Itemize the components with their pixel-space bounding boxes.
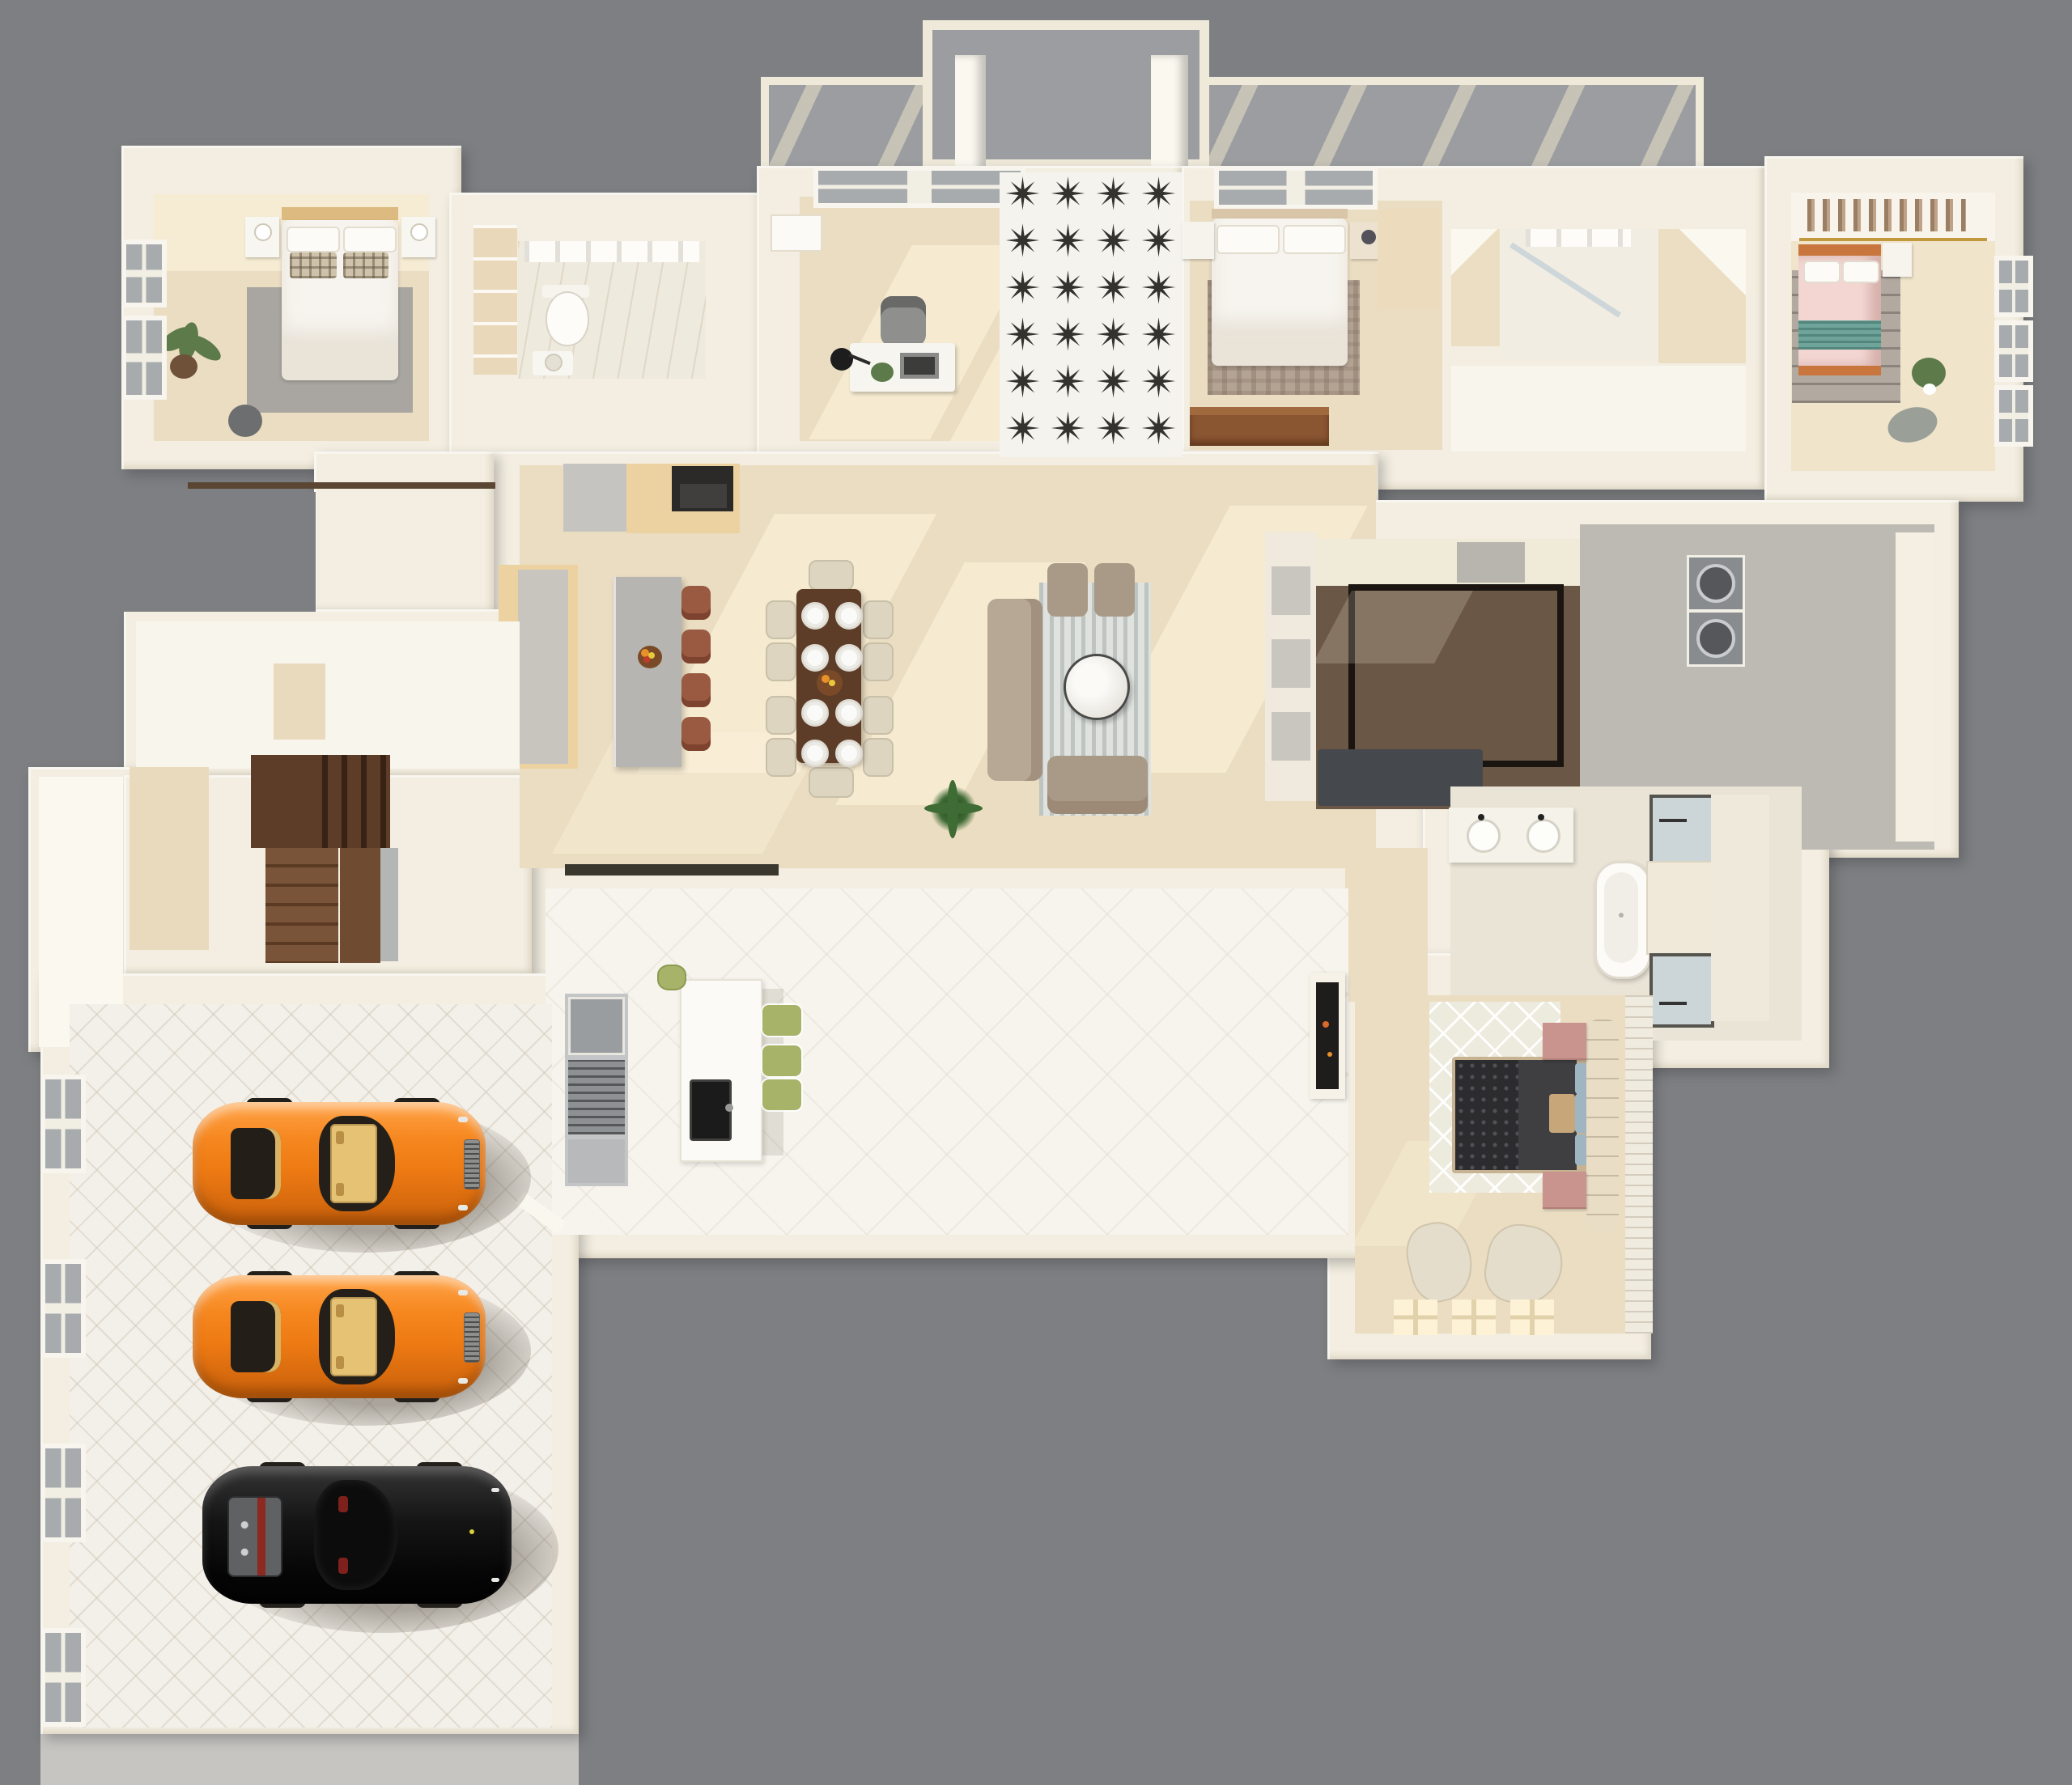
range-hood	[680, 484, 727, 508]
window-light	[1510, 1300, 1554, 1335]
covered-patio	[546, 888, 1348, 1235]
master-bed-throw	[1455, 1060, 1518, 1170]
bed2-headboard	[1212, 209, 1348, 218]
place-setting	[801, 602, 829, 630]
hall-bathroom	[518, 241, 706, 379]
car-seat	[336, 1183, 344, 1196]
car-rear-window	[231, 1301, 281, 1372]
bedroom1-window	[121, 240, 167, 307]
den-cabinet-gray	[1457, 542, 1525, 583]
car-headlight	[458, 1378, 468, 1384]
walk-in-closet-left	[1451, 229, 1500, 346]
bed3-teal-blanket	[1798, 320, 1881, 350]
hall-floor	[136, 621, 520, 769]
bedroom2-dresser	[1190, 407, 1329, 446]
loveseat	[1047, 756, 1148, 814]
stair-steps	[265, 848, 338, 963]
car-headlight	[458, 1205, 468, 1210]
wing-hall-nub	[314, 452, 494, 615]
shower-glass	[1509, 243, 1621, 318]
bar-stool	[681, 630, 711, 664]
bed2-pillow	[1283, 225, 1346, 254]
ottoman	[1047, 563, 1088, 617]
bed2-pillow	[1216, 225, 1280, 254]
bed3-headboard	[1798, 244, 1881, 256]
place-setting	[801, 740, 829, 767]
shower-room	[1501, 229, 1657, 360]
dining-chair	[766, 600, 796, 639]
car-accent	[469, 1529, 474, 1534]
car-seat	[338, 1558, 348, 1574]
dining-chair	[863, 642, 894, 681]
coffee-table	[1064, 654, 1130, 720]
wavy-wallpaper	[1625, 995, 1653, 1333]
place-setting	[835, 699, 863, 727]
stair-glass-chips	[380, 848, 398, 961]
master-pillow-tan	[1549, 1094, 1575, 1133]
patio-faucet	[725, 1104, 733, 1112]
kitchen-island	[614, 577, 681, 767]
floor-pouf	[228, 405, 262, 437]
ember	[1323, 1021, 1329, 1028]
dining-chair	[863, 738, 894, 777]
shower-glass-door	[1650, 795, 1714, 866]
car-grille	[464, 1312, 480, 1363]
bed1-pillow	[287, 227, 340, 252]
dining-chair	[863, 696, 894, 735]
dining-chair	[863, 600, 894, 639]
place-setting	[801, 699, 829, 727]
den-cabinet-band	[1316, 539, 1580, 586]
foyer: ✴ ✴ ✴ ✴ ✴ ✴ ✴ ✴ ✴ ✴ ✴ ✴ ✴ ✴ ✴ ✴ ✴ ✴ ✴ ✴ …	[1000, 172, 1182, 457]
bedroom3-window	[1994, 320, 2033, 382]
office-chair	[881, 296, 926, 346]
washer-door	[1696, 564, 1735, 603]
place-setting	[835, 644, 863, 672]
bed1-headboard	[282, 207, 398, 220]
walk-in-closet-right	[1658, 229, 1746, 363]
green-kettle	[657, 965, 686, 990]
shower-skylight	[1526, 229, 1631, 247]
garage-window	[40, 1444, 86, 1542]
palm-frond	[947, 780, 958, 838]
car-headlight	[491, 1578, 499, 1582]
driveway-apron	[40, 1734, 579, 1785]
stair-slat-screen	[322, 755, 390, 848]
office-ac-unit	[771, 214, 822, 252]
yard-notch	[42, 492, 316, 612]
kitchen-cabinet-gray	[563, 464, 626, 532]
dining-chair-head	[809, 767, 854, 798]
master-corridor	[1345, 848, 1428, 1002]
garage-window	[40, 1259, 86, 1358]
bedroom1-threshold	[188, 482, 495, 489]
car-body	[193, 1102, 486, 1225]
bedroom3-window	[1994, 256, 2033, 317]
dining-chair	[766, 738, 796, 777]
window-light	[1394, 1300, 1437, 1335]
master-nightstand	[1543, 1172, 1586, 1209]
plant-pot	[170, 354, 197, 379]
master-headboard	[1586, 1020, 1619, 1232]
bathroom-skylight	[524, 241, 699, 262]
bar-stool	[681, 673, 711, 707]
car-seat	[336, 1131, 344, 1144]
bar-stool	[681, 586, 711, 620]
hall-closet	[274, 664, 325, 740]
bed1-plaid-pillow	[290, 252, 337, 278]
desk-plant	[871, 363, 894, 382]
car-headlight	[458, 1290, 468, 1295]
dryer-door	[1696, 619, 1735, 658]
sofa	[987, 599, 1042, 781]
laptop	[900, 353, 939, 379]
stair-rail	[340, 848, 380, 963]
table-lamp	[410, 223, 428, 241]
sports-car-orange-2	[193, 1275, 486, 1398]
bed3-pillow	[1842, 261, 1879, 283]
bed3-footboard	[1798, 366, 1881, 375]
nightstand	[1182, 222, 1214, 259]
fruit	[829, 680, 835, 686]
vase	[1361, 230, 1376, 244]
garage-window	[40, 1075, 86, 1173]
vanity-sink	[1467, 819, 1501, 853]
car-grille	[464, 1139, 480, 1190]
bed1-pillow	[343, 227, 397, 252]
vanity-sink	[1526, 819, 1560, 853]
car-seat	[338, 1496, 348, 1512]
kitchen-countertop	[518, 570, 568, 764]
plant-pot	[1923, 384, 1936, 395]
tub-drain	[1619, 913, 1624, 918]
car-seat	[336, 1356, 344, 1369]
bedroom2-window	[1214, 166, 1378, 210]
bed3-pillow	[1803, 261, 1841, 283]
bedroom1-window	[121, 316, 167, 400]
fruit	[643, 656, 650, 663]
window-light	[1452, 1300, 1496, 1335]
patio-stool	[762, 1005, 801, 1036]
faucet	[1478, 814, 1484, 820]
closet-rail	[1799, 238, 1987, 241]
place-setting	[835, 602, 863, 630]
dining-chair	[766, 696, 796, 735]
dryer	[1687, 610, 1745, 667]
supercar-black	[202, 1466, 512, 1604]
bathtub-basin	[1604, 872, 1638, 963]
patio-stool	[762, 1079, 801, 1110]
laundry-counter	[1896, 532, 1934, 842]
bedroom-hall	[1451, 366, 1746, 452]
den	[1316, 539, 1580, 809]
shower-floor	[1711, 795, 1769, 1021]
faucet	[1538, 814, 1544, 820]
fireplace-insert	[1316, 982, 1339, 1089]
washer	[1687, 555, 1745, 612]
sports-car-orange-1	[193, 1102, 486, 1225]
master-nightstand	[1543, 1023, 1586, 1060]
office-window	[813, 166, 1025, 208]
garage-window	[40, 1628, 86, 1727]
outdoor-appliance	[568, 997, 625, 1055]
shower-marble-block	[1646, 861, 1714, 955]
shower-glass-door	[1650, 953, 1714, 1028]
sink-basin	[545, 354, 563, 371]
linen-closet	[473, 225, 517, 375]
bed1-plaid-pillow	[343, 252, 388, 278]
outdoor-cabinet	[568, 1139, 625, 1183]
place-setting	[835, 740, 863, 767]
nightstand	[1883, 243, 1912, 277]
ottoman	[1094, 563, 1135, 617]
car-cockpit	[314, 1480, 397, 1590]
outdoor-grill	[568, 1060, 625, 1134]
bar-stool	[681, 717, 711, 751]
pantry	[129, 767, 209, 950]
bedroom3-window	[1994, 385, 2033, 447]
tv-wall-cabinet	[1265, 532, 1317, 801]
car-seat	[336, 1304, 344, 1317]
patio-door-track	[565, 864, 779, 876]
car-body	[202, 1466, 512, 1604]
dining-chair	[766, 642, 796, 681]
floor-lamp	[830, 348, 853, 371]
dining-chair-head	[809, 560, 854, 591]
car-body	[193, 1275, 486, 1398]
glass-door-handle	[1659, 819, 1687, 822]
floor-plan-canvas: ✴ ✴ ✴ ✴ ✴ ✴ ✴ ✴ ✴ ✴ ✴ ✴ ✴ ✴ ✴ ✴ ✴ ✴ ✴ ✴ …	[0, 0, 2072, 1785]
car-headlight	[458, 1117, 468, 1122]
place-setting	[801, 644, 829, 672]
toilet	[546, 291, 589, 346]
hanging-clothes	[1807, 199, 1966, 231]
closet-nook	[1378, 209, 1439, 310]
car-headlight	[491, 1488, 499, 1492]
table-lamp	[254, 223, 272, 241]
ember	[1327, 1052, 1332, 1057]
patio-stool	[762, 1045, 801, 1076]
car-engine-bay	[227, 1496, 283, 1576]
glass-door-handle	[1659, 1002, 1687, 1005]
car-rear-window	[231, 1128, 281, 1199]
